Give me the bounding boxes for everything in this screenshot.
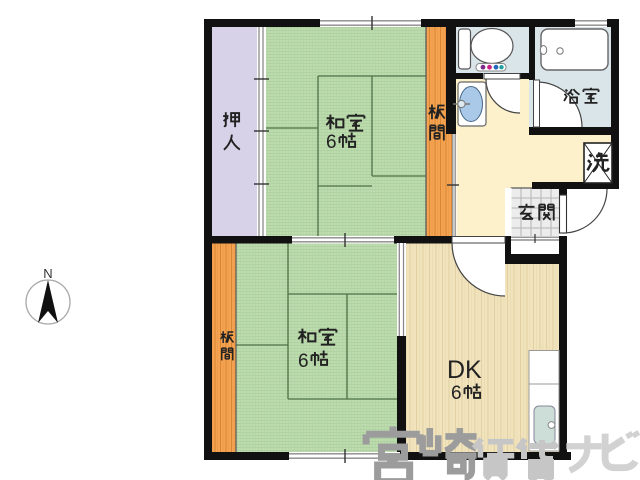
svg-text:6: 6 [451,383,462,404]
svg-text:6: 6 [326,132,337,153]
svg-text:6: 6 [298,351,309,372]
svg-text:DK: DK [447,356,482,384]
svg-text:N: N [43,266,52,281]
